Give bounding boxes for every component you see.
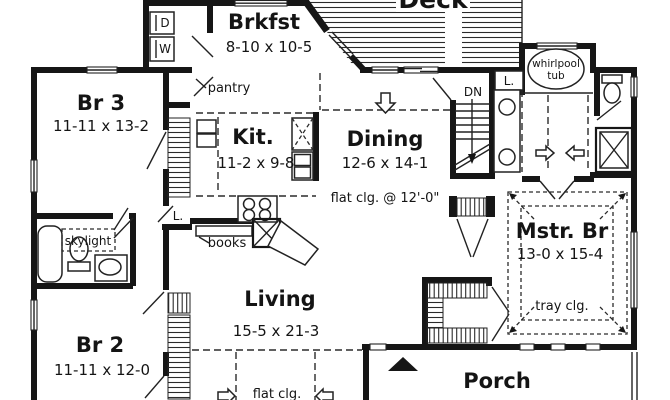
porch-edge [632,352,637,400]
dryer-label: D [160,16,169,30]
living-dims: 15-5 x 21-3 [233,322,320,340]
living-label: Living [244,287,315,311]
kitchen-label: Kit. [232,125,274,149]
floor-plan: Deck Brkfst 8-10 x 10-5 Br 3 11-11 x 13-… [0,0,670,400]
br3-label: Br 3 [77,91,125,115]
floor-plan-drawing: Deck Brkfst 8-10 x 10-5 Br 3 11-11 x 13-… [0,0,670,400]
br3-dims: 11-11 x 13-2 [53,117,149,135]
whirlpool-label-line2: tub [547,70,565,82]
linen-hall-label: L. [173,209,184,223]
skylight-label: skylight [65,234,112,248]
staircase [455,99,490,170]
washer-label: W [159,42,171,56]
closet-hatching [168,118,487,399]
whirlpool-label-line1: whirlpool [532,58,580,70]
books-label: books [208,236,247,251]
kitchen-dims: 11-2 x 9-8 [218,154,295,172]
master-ceiling-note: tray clg. [535,299,588,314]
dining-label: Dining [347,127,424,151]
stairs-down-label: DN [464,85,482,99]
linen-master-label: L. [504,74,515,88]
br2-label: Br 2 [76,333,124,357]
brkfst-dims: 8-10 x 10-5 [226,38,313,56]
master-dims: 13-0 x 15-4 [517,245,604,263]
porch-label: Porch [463,369,531,393]
dining-ceiling-note: flat clg. @ 12'-0" [331,191,440,206]
master-label: Mstr. Br [516,219,609,243]
dining-dims: 12-6 x 14-1 [342,154,429,172]
brkfst-label: Brkfst [228,10,300,34]
room-labels: Deck Brkfst 8-10 x 10-5 Br 3 11-11 x 13-… [53,0,609,400]
br2-dims: 11-11 x 12-0 [54,361,150,379]
deck-label: Deck [398,0,469,14]
living-ceiling-note: flat clg. [253,387,302,400]
entry-marker-triangle [388,357,418,371]
pantry-label: pantry [208,81,251,96]
